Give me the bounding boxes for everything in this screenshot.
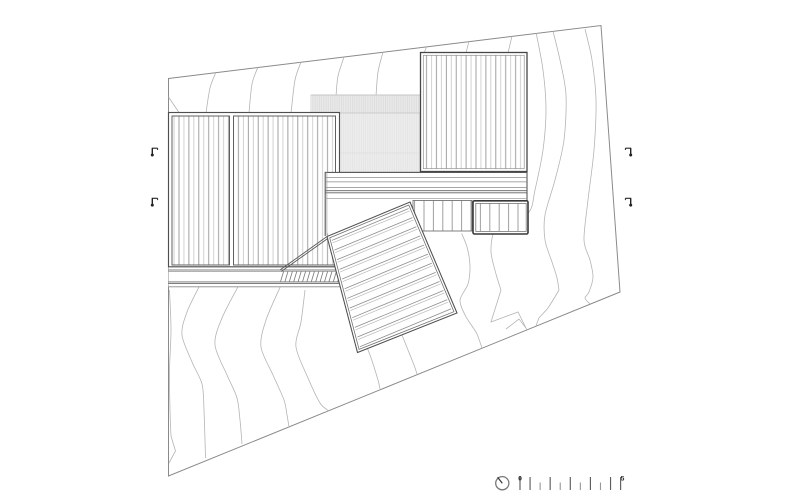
svg-text:0: 0 — [518, 476, 522, 483]
svg-text:5: 5 — [621, 476, 625, 483]
